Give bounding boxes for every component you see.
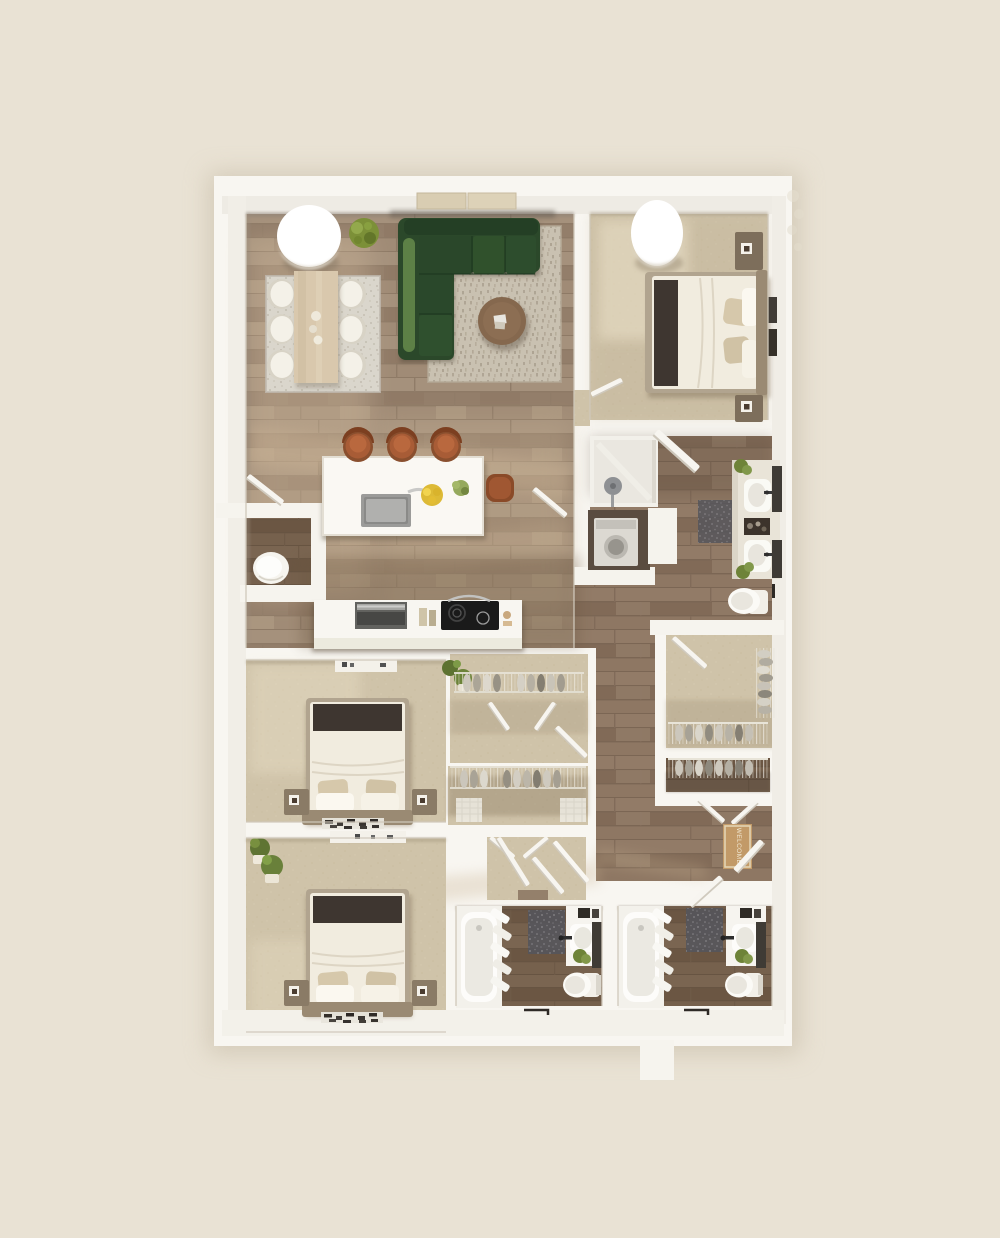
svg-text:WELCOME: WELCOME: [735, 828, 742, 865]
